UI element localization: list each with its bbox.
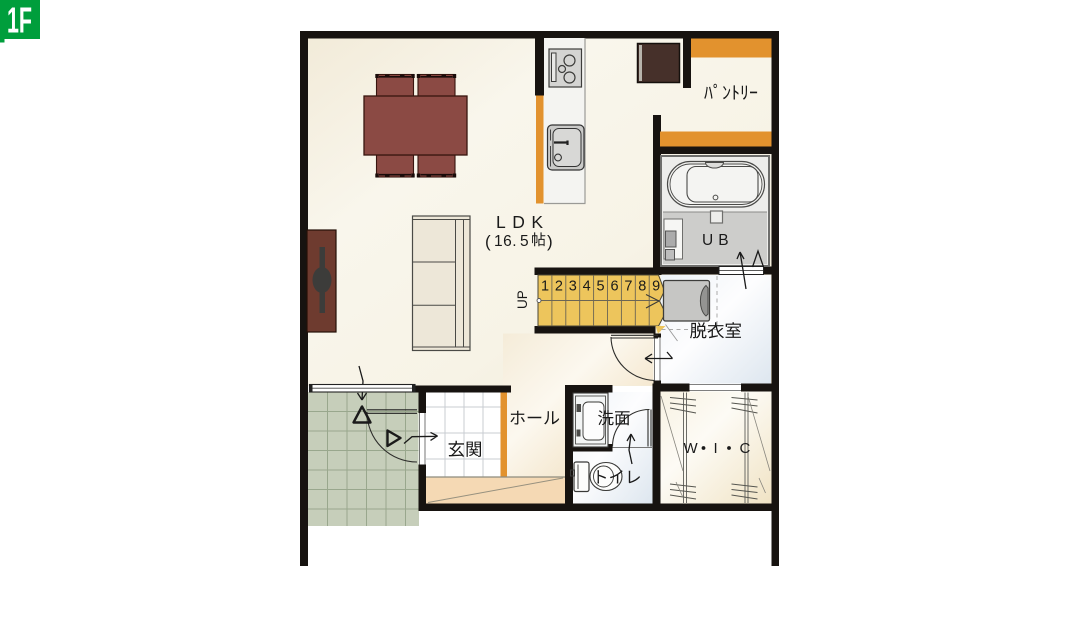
svg-text:LDK: LDK xyxy=(496,212,550,232)
svg-text:7: 7 xyxy=(624,279,632,295)
svg-text:2: 2 xyxy=(555,279,563,295)
svg-text:W: W xyxy=(684,440,699,457)
svg-text:4: 4 xyxy=(583,279,591,295)
svg-text:8: 8 xyxy=(638,279,646,295)
svg-text:(: ( xyxy=(485,232,491,251)
svg-text:9: 9 xyxy=(652,279,660,295)
svg-text:3: 3 xyxy=(569,279,577,295)
svg-text:1F: 1F xyxy=(7,0,32,41)
svg-text:C: C xyxy=(740,440,751,457)
svg-text:UB: UB xyxy=(702,232,734,249)
svg-text:6: 6 xyxy=(610,279,618,295)
svg-text:UP: UP xyxy=(515,290,530,309)
svg-text:): ) xyxy=(547,232,553,251)
svg-text:5: 5 xyxy=(597,279,605,295)
svg-text:5: 5 xyxy=(520,233,529,250)
svg-text:I: I xyxy=(714,440,718,457)
svg-text:16.: 16. xyxy=(494,233,517,250)
svg-text:1: 1 xyxy=(541,279,549,295)
